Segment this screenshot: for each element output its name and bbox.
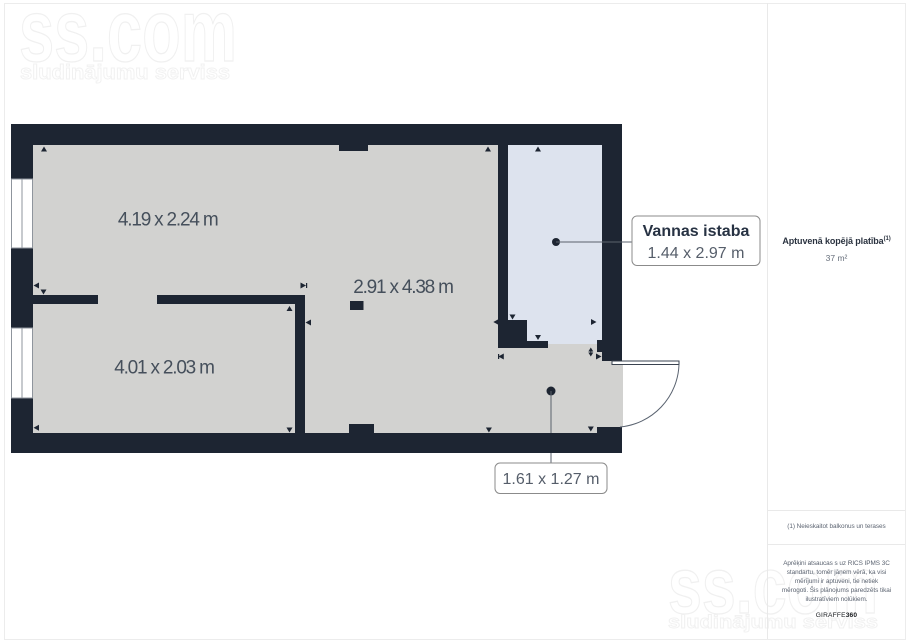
svg-text:4.19 x 2.24 m: 4.19 x 2.24 m bbox=[118, 209, 218, 230]
svg-text:1.44 x 2.97 m: 1.44 x 2.97 m bbox=[648, 245, 745, 262]
svg-text:Vannas istaba: Vannas istaba bbox=[643, 223, 750, 240]
svg-text:2.91 x 4.38 m: 2.91 x 4.38 m bbox=[353, 277, 453, 298]
svg-text:1.61 x 1.27 m: 1.61 x 1.27 m bbox=[503, 471, 600, 488]
svg-text:4.01 x 2.03 m: 4.01 x 2.03 m bbox=[114, 358, 214, 379]
